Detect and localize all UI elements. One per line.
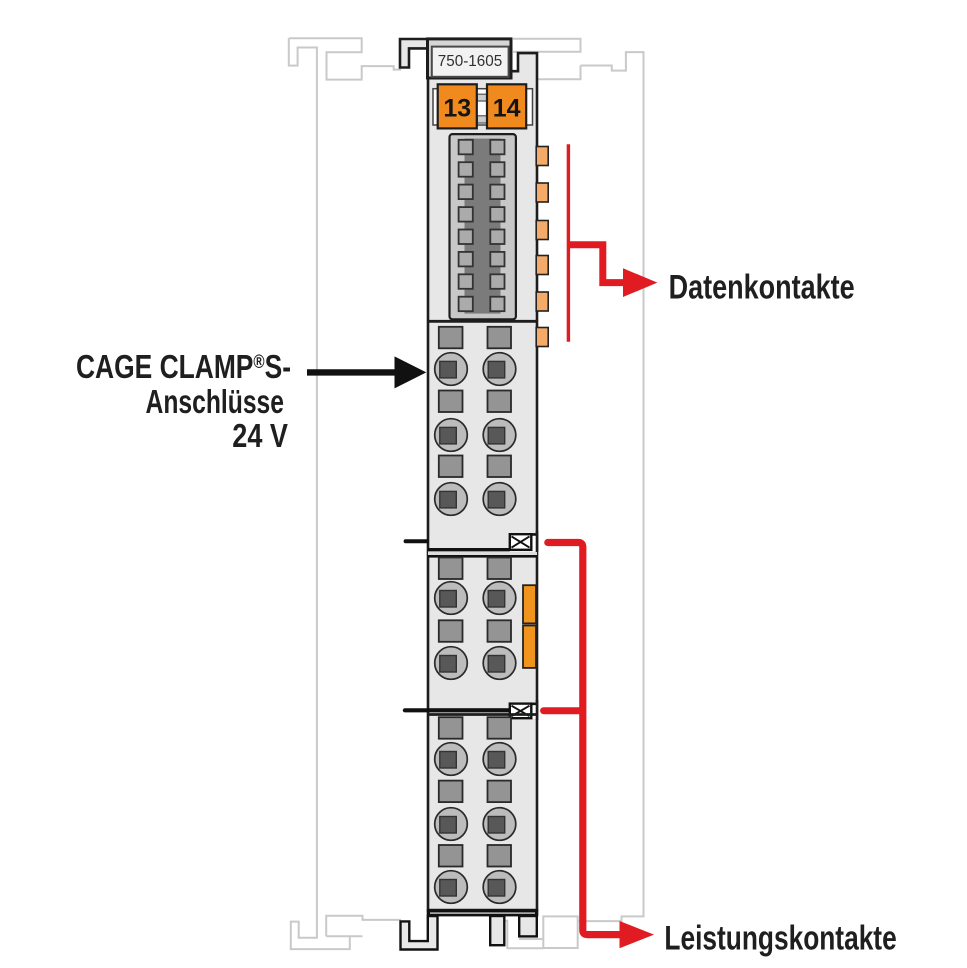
svg-text:14: 14 <box>493 95 521 123</box>
svg-text:13: 13 <box>443 95 471 123</box>
svg-text:Leistungskontakte: Leistungskontakte <box>664 920 896 958</box>
svg-text:Anschlüsse: Anschlüsse <box>146 383 285 420</box>
svg-text:24 V: 24 V <box>232 417 288 454</box>
svg-text:Datenkontakte: Datenkontakte <box>669 268 855 306</box>
svg-text:750-1605: 750-1605 <box>438 53 503 70</box>
